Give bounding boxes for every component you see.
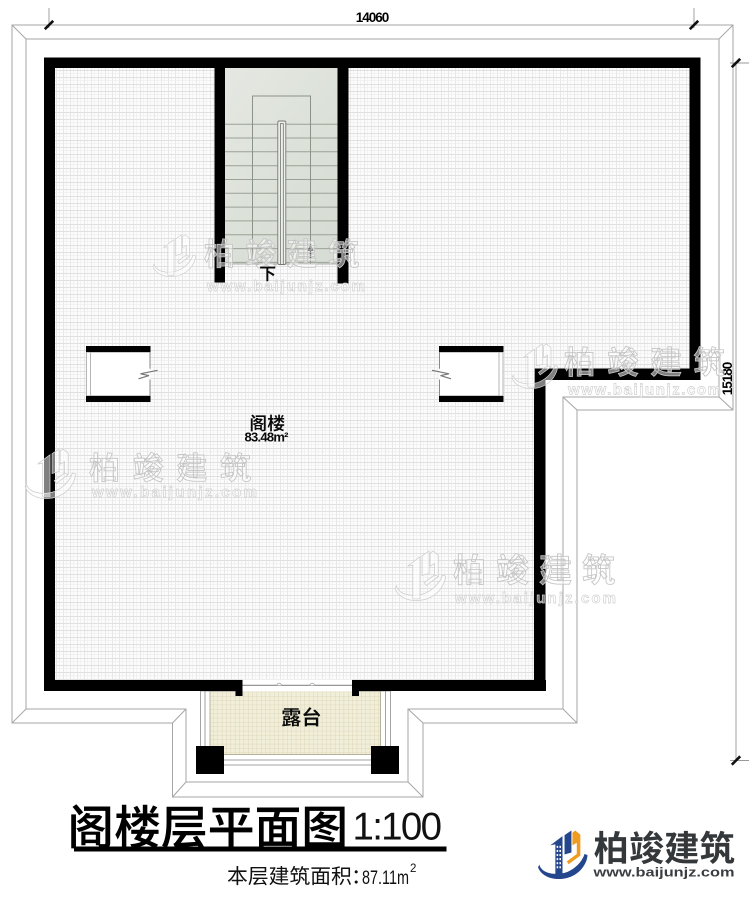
svg-text:www.baijunjz.com: www.baijunjz.com [592,865,734,880]
svg-text:87.11m: 87.11m [362,868,409,889]
svg-text:15180: 15180 [720,362,735,396]
svg-text:14060: 14060 [356,10,390,25]
svg-text:2: 2 [410,863,416,875]
svg-text:83.48m²: 83.48m² [245,430,290,445]
svg-text:1:100: 1:100 [353,806,443,849]
